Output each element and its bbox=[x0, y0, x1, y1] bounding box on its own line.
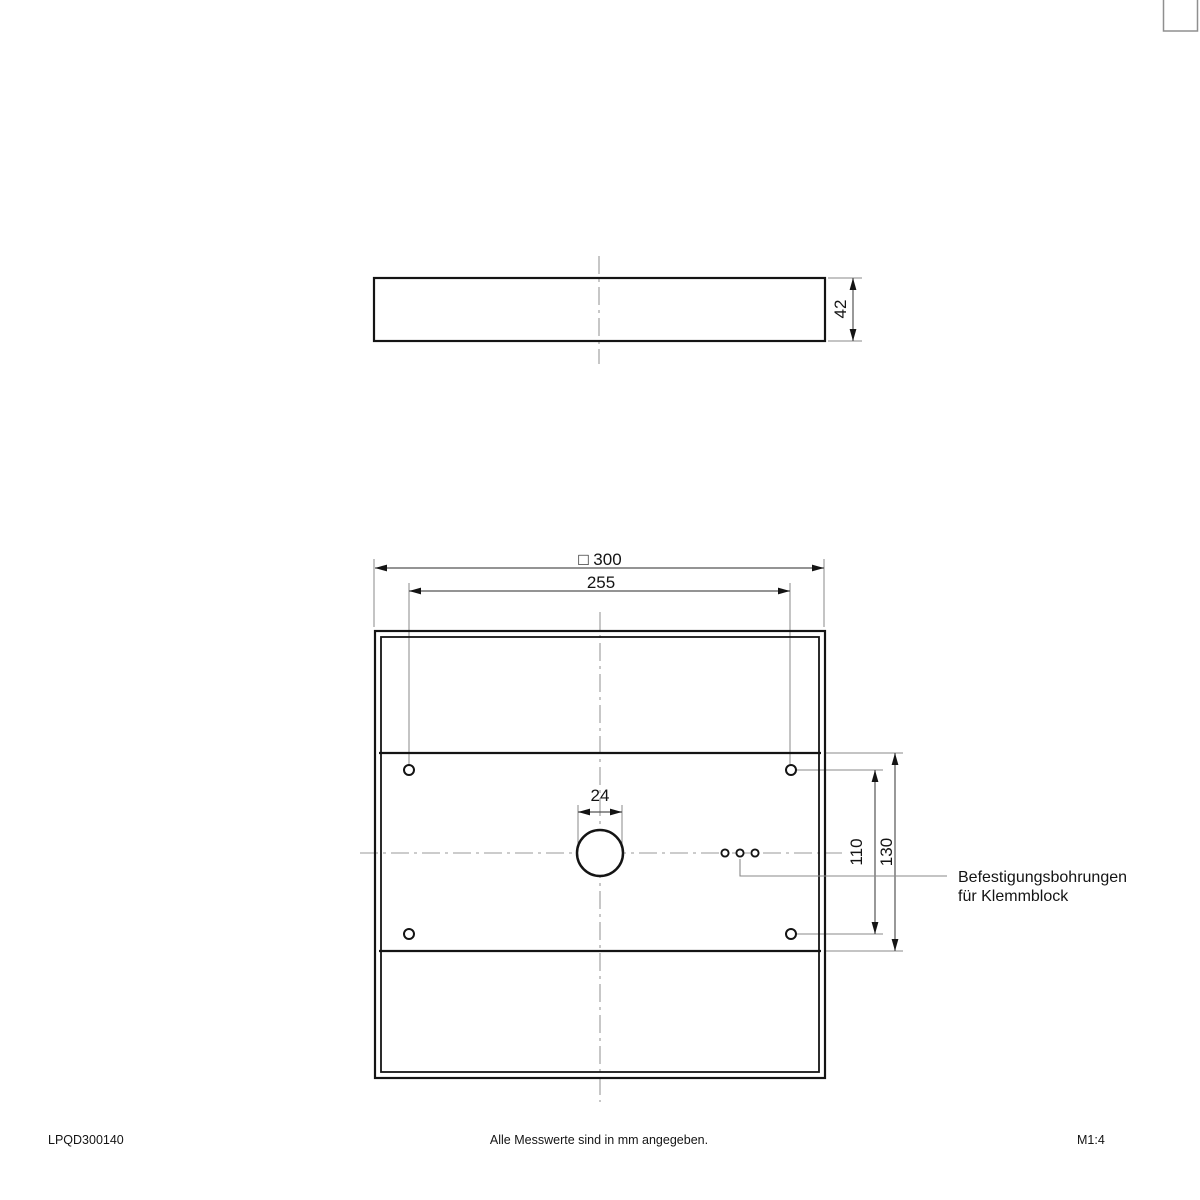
klemmblock-hole-2 bbox=[736, 849, 743, 856]
footer: LPQD300140 Alle Messwerte sind in mm ang… bbox=[48, 1133, 1105, 1147]
drawing-sheet: □ 300 255 24 42 110 130 Befestigungsbohr… bbox=[0, 0, 1200, 1200]
annotation-line2: für Klemmblock bbox=[958, 888, 1069, 905]
dim-label-255: 255 bbox=[587, 573, 615, 592]
product-code: LPQD300140 bbox=[48, 1133, 124, 1147]
klemmblock-hole-3 bbox=[751, 849, 758, 856]
klemmblock-hole-1 bbox=[721, 849, 728, 856]
dim-label-110: 110 bbox=[847, 838, 866, 865]
units-note: Alle Messwerte sind in mm angegeben. bbox=[490, 1133, 708, 1147]
page-corner-box bbox=[1164, 0, 1198, 31]
dim-label-24: 24 bbox=[591, 786, 610, 805]
scale-label: M1:4 bbox=[1077, 1133, 1105, 1147]
technical-drawing: □ 300 255 24 42 110 130 Befestigungsbohr… bbox=[0, 0, 1200, 1200]
center-cable-hole bbox=[577, 830, 623, 876]
dim-label-overall-300: □ 300 bbox=[578, 550, 621, 569]
mounting-hole-bottom-left bbox=[404, 929, 414, 939]
annotation-line1: Befestigungsbohrungen bbox=[958, 869, 1127, 886]
mounting-hole-top-left bbox=[404, 765, 414, 775]
mounting-hole-top-right bbox=[786, 765, 796, 775]
annotation-klemmblock: Befestigungsbohrungen für Klemmblock bbox=[958, 869, 1127, 905]
dim-label-130: 130 bbox=[877, 838, 896, 866]
mounting-hole-bottom-right bbox=[786, 929, 796, 939]
dim-label-42: 42 bbox=[831, 300, 850, 319]
